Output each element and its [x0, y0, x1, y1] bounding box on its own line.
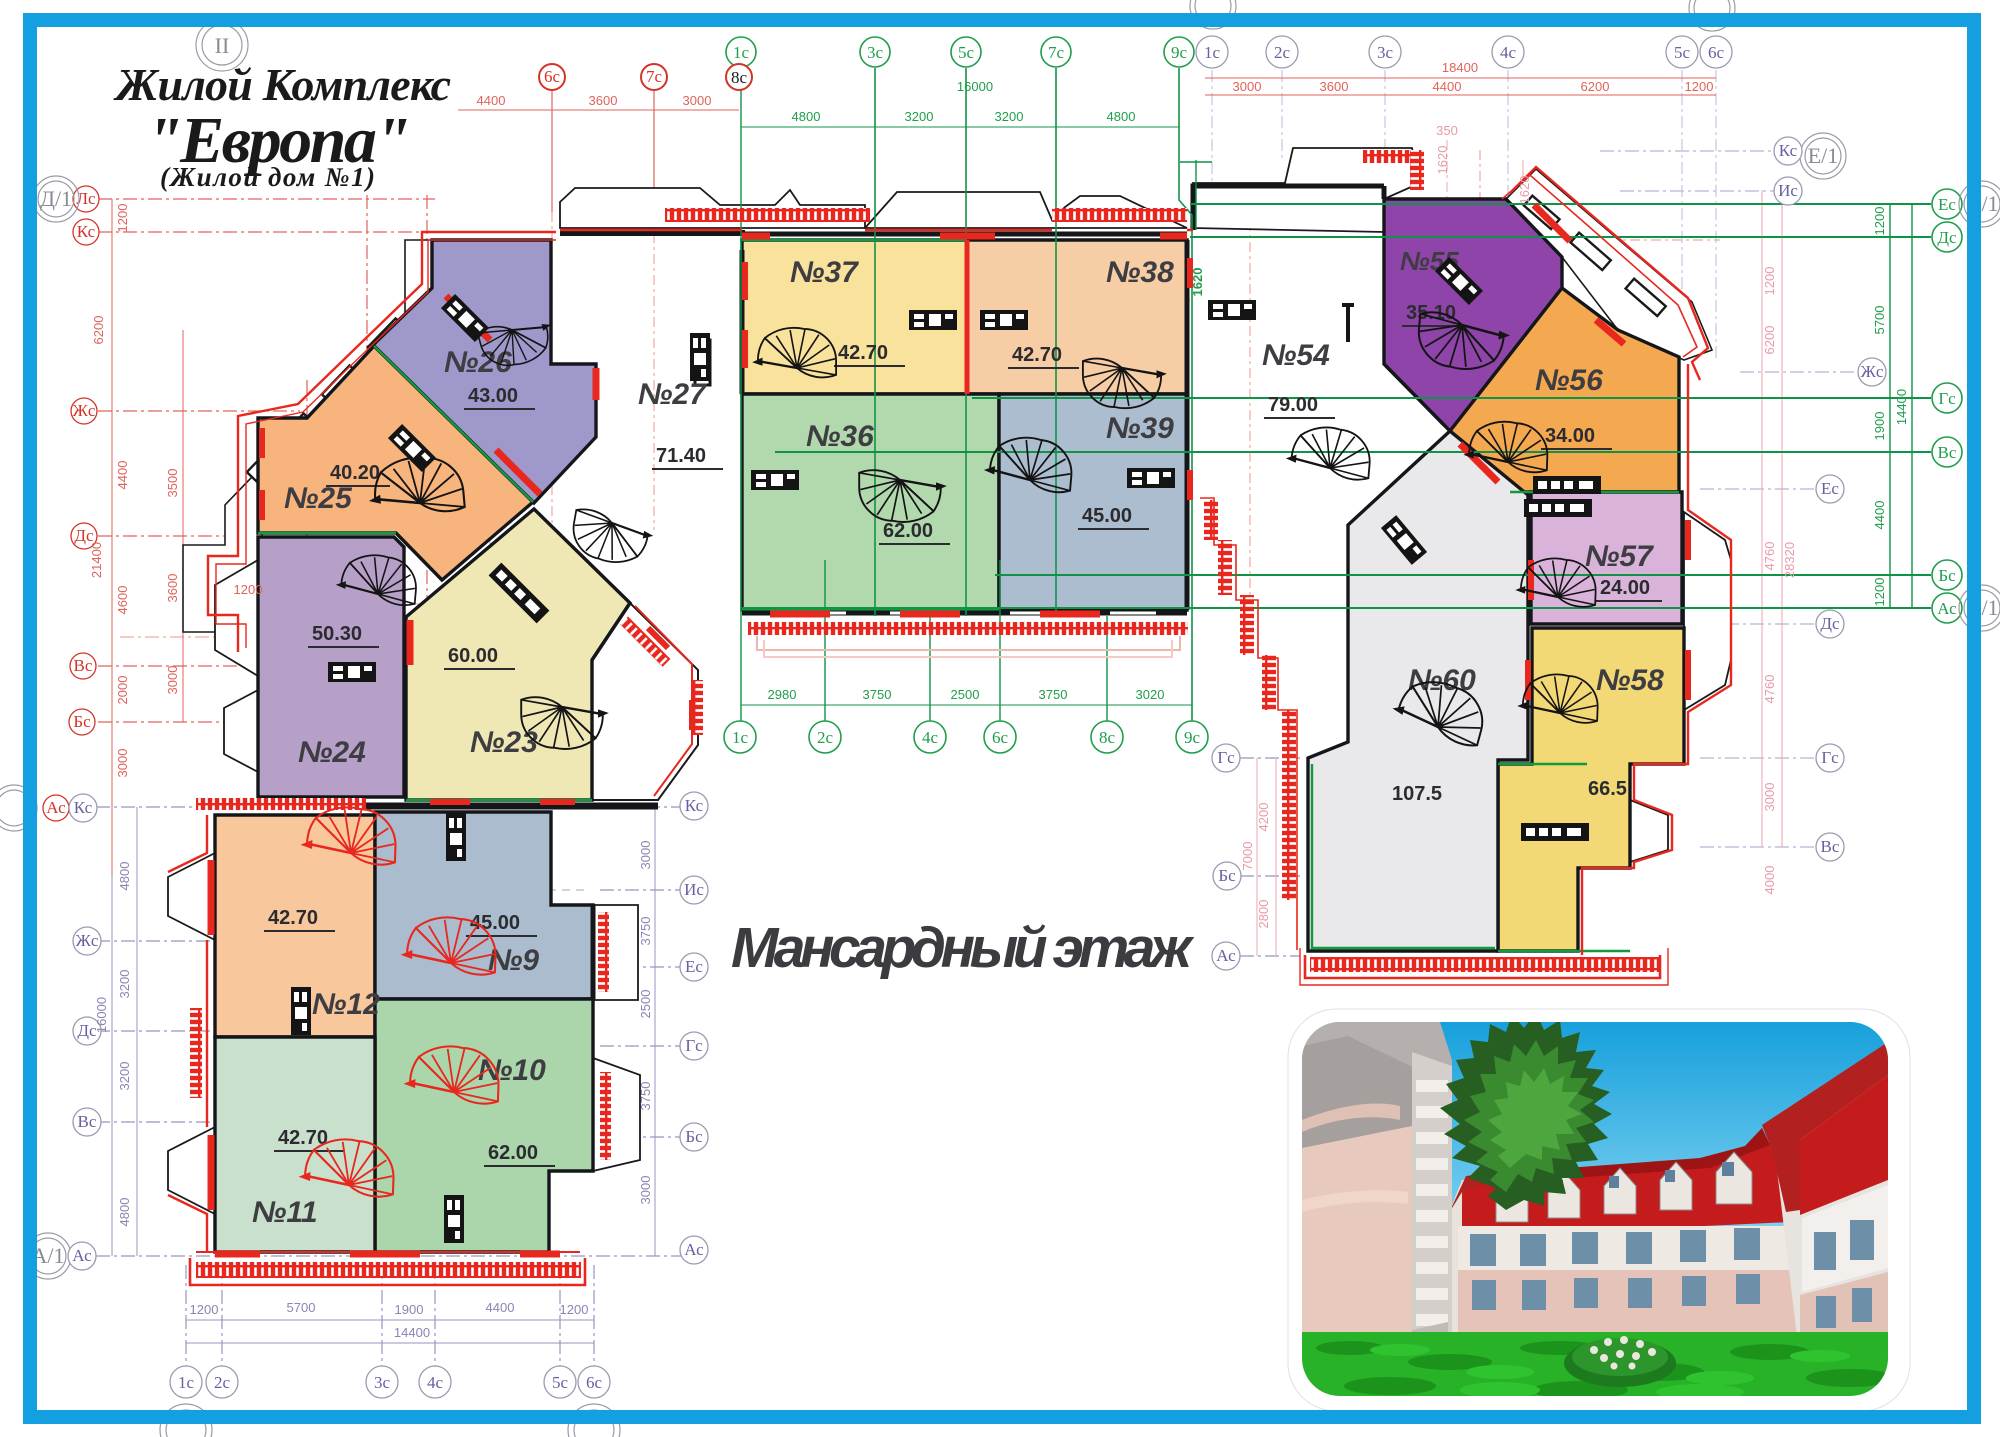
svg-text:4800: 4800	[792, 109, 821, 124]
svg-text:№11: №11	[252, 1196, 318, 1229]
svg-text:9с: 9с	[1184, 728, 1201, 747]
svg-text:Кс: Кс	[74, 798, 93, 817]
svg-text:4400: 4400	[486, 1300, 515, 1315]
svg-text:Гс: Гс	[685, 1036, 703, 1055]
svg-text:42.70: 42.70	[838, 342, 888, 364]
svg-text:Мансардный этаж: Мансардный этаж	[731, 916, 1195, 980]
svg-text:4200: 4200	[1256, 803, 1271, 832]
svg-text:Вс: Вс	[1938, 443, 1957, 462]
svg-text:350: 350	[1436, 123, 1458, 138]
svg-text:3с: 3с	[867, 43, 884, 62]
svg-text:Гс: Гс	[1821, 748, 1839, 767]
svg-text:2800: 2800	[1256, 900, 1271, 929]
svg-text:/1: /1	[1981, 595, 1998, 620]
svg-text:79.00: 79.00	[1268, 394, 1318, 416]
svg-text:3500: 3500	[165, 469, 180, 498]
svg-text:1с: 1с	[1204, 43, 1221, 62]
svg-text:Ас: Ас	[1216, 946, 1236, 965]
svg-text:№58: №58	[1596, 664, 1664, 697]
svg-text:3750: 3750	[863, 687, 892, 702]
svg-text:Ес: Ес	[1821, 479, 1839, 498]
svg-text:8с: 8с	[731, 68, 748, 87]
svg-text:42.70: 42.70	[1012, 344, 1062, 366]
svg-text:5с: 5с	[552, 1373, 569, 1392]
svg-text:3000: 3000	[115, 749, 130, 778]
svg-text:1с: 1с	[733, 43, 750, 62]
svg-text:3750: 3750	[638, 1082, 653, 1111]
svg-text:4с: 4с	[1500, 43, 1517, 62]
svg-text:1200: 1200	[115, 204, 130, 233]
svg-text:1с: 1с	[178, 1373, 195, 1392]
svg-text:Жс: Жс	[73, 401, 96, 420]
svg-text:№27: №27	[638, 378, 707, 411]
svg-text:№38: №38	[1106, 256, 1174, 289]
svg-text:5с: 5с	[1674, 43, 1691, 62]
svg-text:16000: 16000	[94, 997, 109, 1033]
svg-text:3000: 3000	[165, 666, 180, 695]
svg-text:4400: 4400	[1872, 501, 1887, 530]
svg-text:№36: №36	[806, 420, 874, 453]
svg-text:2с: 2с	[1274, 43, 1291, 62]
svg-text:Жилой Комплекс: Жилой Комплекс	[113, 59, 451, 110]
svg-text:Ес: Ес	[685, 957, 703, 976]
svg-text:21400: 21400	[89, 542, 104, 578]
svg-text:62.00: 62.00	[883, 520, 933, 542]
svg-text:Ис: Ис	[1778, 181, 1798, 200]
svg-text:3020: 3020	[1136, 687, 1165, 702]
svg-text:3200: 3200	[117, 1062, 132, 1091]
svg-text:14400: 14400	[1894, 389, 1909, 425]
svg-text:18400: 18400	[1442, 60, 1478, 75]
svg-text:2с: 2с	[817, 728, 834, 747]
svg-text:Ес: Ес	[1938, 195, 1956, 214]
svg-text:3750: 3750	[638, 917, 653, 946]
svg-text:1900: 1900	[1872, 412, 1887, 441]
svg-text:№54: №54	[1262, 339, 1330, 372]
svg-text:6с: 6с	[544, 67, 561, 86]
svg-text:Вс: Вс	[1821, 837, 1840, 856]
svg-text:Кс: Кс	[1779, 141, 1798, 160]
svg-text:3000: 3000	[638, 841, 653, 870]
svg-text:Бс: Бс	[1218, 866, 1236, 885]
svg-text:Ас: Ас	[46, 798, 66, 817]
svg-text:1200: 1200	[1872, 578, 1887, 607]
svg-text:II: II	[215, 33, 230, 58]
svg-text:3с: 3с	[1377, 43, 1394, 62]
svg-text:Ас: Ас	[72, 1246, 92, 1265]
svg-text:6200: 6200	[1762, 326, 1777, 355]
svg-text:4760: 4760	[1762, 542, 1777, 571]
svg-text:2с: 2с	[214, 1373, 231, 1392]
svg-text:1620: 1620	[1517, 176, 1532, 205]
svg-text:Бс: Бс	[685, 1127, 703, 1146]
svg-text:50.30: 50.30	[312, 623, 362, 645]
svg-text:4800: 4800	[117, 1198, 132, 1227]
svg-text:№39: №39	[1106, 412, 1174, 445]
svg-text:Дс: Дс	[1820, 614, 1840, 633]
svg-text:4000: 4000	[1762, 866, 1777, 895]
svg-text:(Жилой дом №1): (Жилой дом №1)	[160, 162, 375, 192]
svg-text:4400: 4400	[115, 461, 130, 490]
svg-text:6с: 6с	[586, 1373, 603, 1392]
svg-text:7с: 7с	[646, 67, 663, 86]
svg-text:7000: 7000	[1240, 842, 1255, 871]
svg-text:Ис: Ис	[684, 880, 704, 899]
svg-text:6200: 6200	[1581, 79, 1610, 94]
svg-text:1200: 1200	[234, 582, 263, 597]
svg-text:/1: /1	[1981, 191, 1998, 216]
svg-text:3750: 3750	[1039, 687, 1068, 702]
svg-text:Ас: Ас	[684, 1240, 704, 1259]
svg-text:4400: 4400	[477, 93, 506, 108]
svg-text:Бс: Бс	[73, 712, 91, 731]
svg-text:1200: 1200	[1762, 267, 1777, 296]
svg-text:3000: 3000	[638, 1176, 653, 1205]
svg-text:Вс: Вс	[74, 656, 93, 675]
svg-text:40.20: 40.20	[330, 462, 380, 484]
svg-text:43.00: 43.00	[468, 385, 518, 407]
svg-text:2980: 2980	[768, 687, 797, 702]
svg-text:3000: 3000	[683, 93, 712, 108]
svg-text:7с: 7с	[1048, 43, 1065, 62]
svg-text:2000: 2000	[115, 676, 130, 705]
svg-text:4с: 4с	[922, 728, 939, 747]
svg-text:3600: 3600	[589, 93, 618, 108]
svg-text:28320: 28320	[1782, 542, 1797, 578]
svg-text:3с: 3с	[374, 1373, 391, 1392]
svg-text:Жс: Жс	[76, 931, 99, 950]
svg-text:1620: 1620	[1190, 268, 1205, 297]
svg-text:3200: 3200	[995, 109, 1024, 124]
svg-text:4800: 4800	[117, 862, 132, 891]
svg-text:107.5: 107.5	[1392, 783, 1442, 805]
svg-text:№57: №57	[1585, 540, 1654, 573]
svg-text:60.00: 60.00	[448, 645, 498, 667]
svg-text:3200: 3200	[905, 109, 934, 124]
svg-text:34.00: 34.00	[1545, 425, 1595, 447]
svg-text:4600: 4600	[115, 586, 130, 615]
svg-text:3600: 3600	[165, 574, 180, 603]
svg-text:Ас: Ас	[1937, 599, 1957, 618]
svg-text:42.70: 42.70	[268, 907, 318, 929]
svg-text:Гс: Гс	[1217, 748, 1235, 767]
svg-text:2500: 2500	[638, 990, 653, 1019]
svg-text:4800: 4800	[1107, 109, 1136, 124]
svg-text:№56: №56	[1535, 364, 1603, 397]
svg-text:8с: 8с	[1099, 728, 1116, 747]
svg-text:№12: №12	[312, 988, 380, 1021]
svg-text:5с: 5с	[958, 43, 975, 62]
svg-text:Кс: Кс	[685, 796, 704, 815]
svg-text:Кс: Кс	[77, 222, 96, 241]
svg-text:№37: №37	[790, 256, 859, 289]
svg-text:1620: 1620	[1435, 146, 1450, 175]
svg-text:14400: 14400	[394, 1325, 430, 1340]
svg-text:1200: 1200	[1872, 207, 1887, 236]
svg-text:3000: 3000	[1233, 79, 1262, 94]
svg-text:6с: 6с	[992, 728, 1009, 747]
svg-text:71.40: 71.40	[656, 445, 706, 467]
svg-text:1900: 1900	[395, 1302, 424, 1317]
svg-text:Жс: Жс	[1861, 362, 1884, 381]
svg-text:9с: 9с	[1171, 43, 1188, 62]
svg-text:1200: 1200	[1685, 79, 1714, 94]
svg-text:Бс: Бс	[1938, 566, 1956, 585]
svg-text:Гс: Гс	[1938, 389, 1956, 408]
svg-text:Дс: Дс	[1937, 228, 1957, 247]
svg-text:Вс: Вс	[78, 1112, 97, 1131]
svg-text:5700: 5700	[1872, 306, 1887, 335]
svg-text:1200: 1200	[560, 1302, 589, 1317]
svg-text:4с: 4с	[427, 1373, 444, 1392]
svg-text:Е/1: Е/1	[1808, 143, 1839, 168]
svg-text:62.00: 62.00	[488, 1142, 538, 1164]
svg-text:6200: 6200	[91, 316, 106, 345]
svg-text:24.00: 24.00	[1600, 577, 1650, 599]
svg-text:3200: 3200	[117, 970, 132, 999]
svg-text:№23: №23	[470, 726, 538, 759]
svg-text:1200: 1200	[190, 1302, 219, 1317]
svg-text:3000: 3000	[1762, 783, 1777, 812]
svg-text:2500: 2500	[951, 687, 980, 702]
svg-text:3600: 3600	[1320, 79, 1349, 94]
svg-text:№24: №24	[298, 736, 366, 769]
svg-text:4760: 4760	[1762, 675, 1777, 704]
svg-text:1с: 1с	[732, 728, 749, 747]
svg-text:45.00: 45.00	[1082, 505, 1132, 527]
svg-text:6с: 6с	[1708, 43, 1725, 62]
svg-text:4400: 4400	[1433, 79, 1462, 94]
svg-text:5700: 5700	[287, 1300, 316, 1315]
svg-text:Д/1: Д/1	[40, 186, 72, 211]
svg-text:16000: 16000	[957, 79, 993, 94]
svg-text:66.5: 66.5	[1588, 778, 1627, 800]
